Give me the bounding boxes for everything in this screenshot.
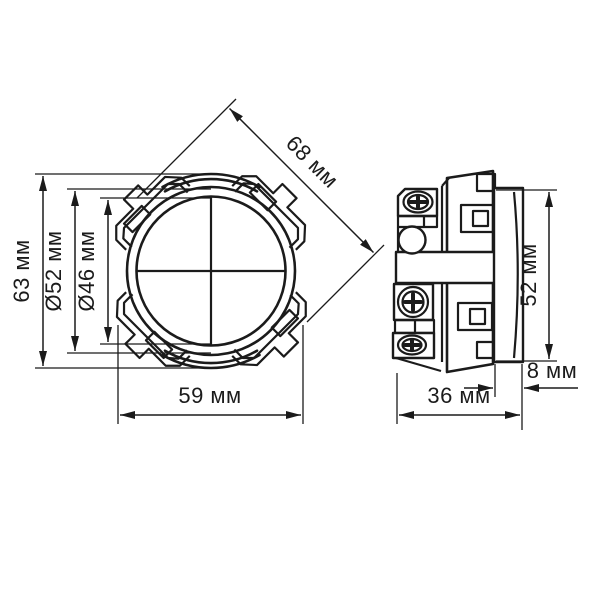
dimension-label-59: 59 мм — [178, 383, 241, 408]
mounting-plate — [396, 252, 495, 283]
terminal-bar-top — [398, 216, 437, 227]
mounting-tab-bottom-right — [230, 290, 322, 382]
dimension-label-d46: Ø46 мм — [74, 231, 99, 312]
dimension-mounting-depth-36: 36 мм — [397, 373, 520, 424]
cable-hole — [399, 227, 426, 254]
snap-clip-top-window — [473, 211, 488, 226]
snap-clip-bottom-window — [470, 309, 485, 324]
dimension-diagonal-68: 68 мм — [137, 99, 384, 322]
technical-drawing-canvas: 63 мм Ø52 мм Ø46 мм 59 мм 68 мм 52 мм 8 … — [0, 0, 600, 600]
dimension-label-52: 52 мм — [516, 243, 541, 306]
dimension-label-8: 8 мм — [527, 358, 578, 383]
dimension-label-63: 63 мм — [9, 239, 34, 302]
dimension-label-68: 68 мм — [281, 130, 343, 192]
dimensional-drawing: 63 мм Ø52 мм Ø46 мм 59 мм 68 мм 52 мм 8 … — [0, 0, 600, 600]
side-view — [393, 171, 523, 372]
front-view — [100, 160, 322, 382]
terminal-bottom-chamfer — [396, 358, 441, 371]
snap-clip-top — [461, 205, 495, 232]
snap-clip-bottom — [458, 303, 492, 330]
dimension-label-36: 36 мм — [427, 383, 490, 408]
dimension-label-d52: Ø52 мм — [41, 231, 66, 312]
